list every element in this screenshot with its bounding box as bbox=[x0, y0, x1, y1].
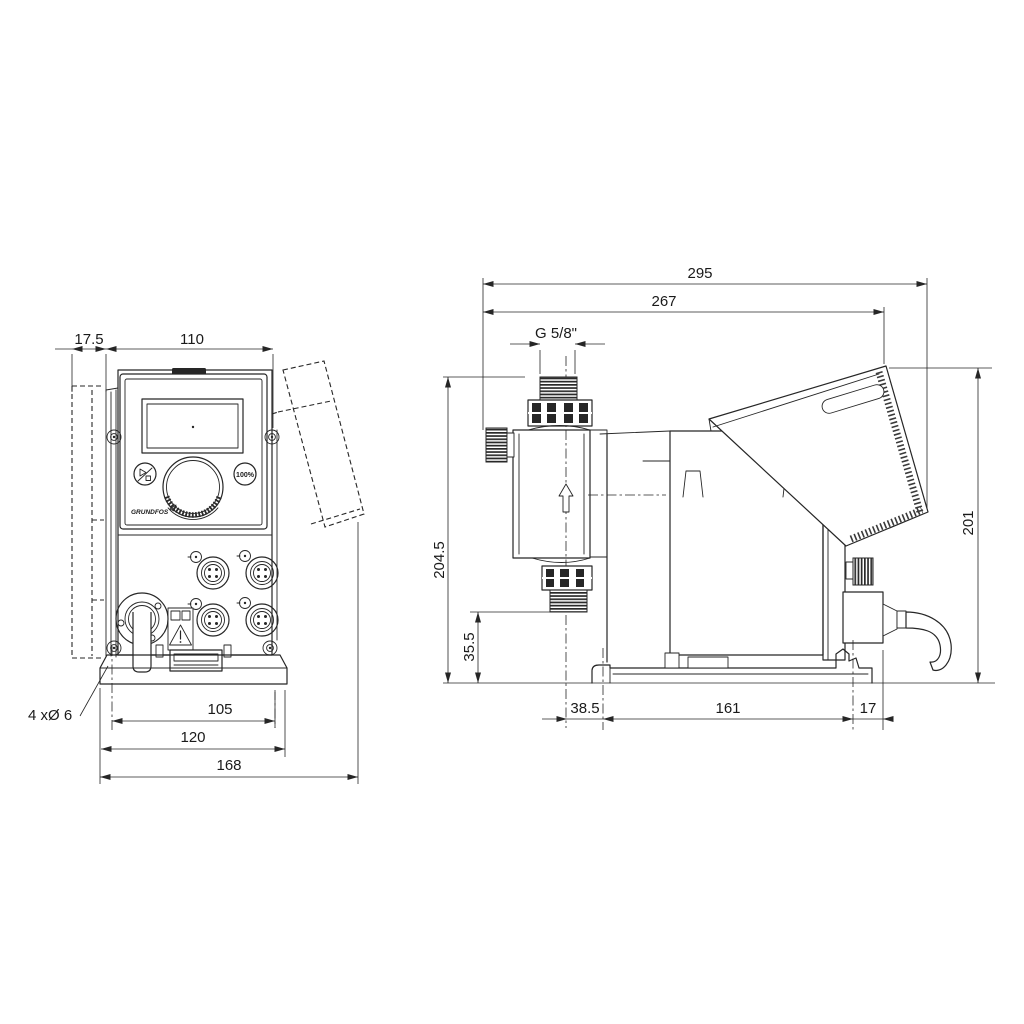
dim-110: 110 bbox=[180, 331, 204, 348]
cable-gland bbox=[843, 592, 951, 670]
dosing-head-hidden-outline bbox=[272, 361, 364, 640]
connector-top-right[interactable] bbox=[246, 557, 278, 589]
connector-top-left[interactable] bbox=[197, 557, 229, 589]
discharge-union-nut bbox=[528, 400, 592, 426]
connector-function-icons bbox=[188, 551, 251, 610]
head-bracket bbox=[588, 430, 670, 683]
dim-295: 295 bbox=[687, 265, 712, 282]
dim-201: 201 bbox=[960, 510, 977, 535]
hundred-percent-label: 100% bbox=[236, 472, 255, 479]
dim-17: 17 bbox=[860, 700, 877, 717]
suction-thread bbox=[550, 590, 587, 612]
base-clamp bbox=[156, 645, 231, 671]
control-panel: 100% GRUNDFOS bbox=[120, 374, 267, 529]
dosing-head bbox=[486, 356, 592, 728]
dim-267: 267 bbox=[651, 293, 676, 310]
base-plate-side bbox=[592, 649, 872, 683]
pump-head-cylinder bbox=[513, 430, 590, 558]
power-cable-front bbox=[133, 612, 151, 672]
display-cursor-dot bbox=[192, 426, 194, 428]
discharge-thread bbox=[540, 377, 577, 400]
flow-direction-arrow bbox=[559, 484, 573, 512]
dimensional-drawing-page: 100% GRUNDFOS bbox=[0, 0, 1024, 1024]
dim-35-5: 35.5 bbox=[461, 632, 478, 661]
dosing-pump-dimensional-drawing: 100% GRUNDFOS bbox=[0, 0, 1024, 1024]
leader-line-holes bbox=[80, 666, 108, 716]
dim-161: 161 bbox=[715, 700, 740, 717]
head-bottom-shoulder bbox=[532, 558, 590, 563]
front-view: 100% GRUNDFOS bbox=[28, 331, 364, 784]
power-cable-side bbox=[906, 612, 951, 670]
rear-connector-stub bbox=[846, 558, 873, 585]
clamp-tab-1 bbox=[683, 471, 703, 497]
signal-connectors bbox=[188, 551, 278, 637]
grundfos-logo: GRUNDFOS bbox=[131, 509, 169, 516]
dim-120: 120 bbox=[180, 729, 205, 746]
control-cover bbox=[709, 366, 928, 546]
dim-17-5: 17.5 bbox=[74, 331, 103, 348]
front-foot bbox=[592, 665, 610, 683]
dim-105: 105 bbox=[207, 701, 232, 718]
dim-mounting-holes: 4 xØ 6 bbox=[28, 707, 72, 724]
connector-bottom-right[interactable] bbox=[246, 604, 278, 636]
connector-bottom-left[interactable] bbox=[197, 604, 229, 636]
deaeration-valve bbox=[486, 428, 514, 462]
side-view: 295 267 G 5/8" 204.5 35.5 bbox=[431, 265, 995, 730]
dim-thread: G 5/8" bbox=[535, 325, 577, 342]
wall-plate-hidden bbox=[72, 386, 104, 658]
mains-cable-flange bbox=[116, 593, 168, 672]
warning-label bbox=[168, 608, 193, 650]
dim-38-5: 38.5 bbox=[570, 700, 599, 717]
suction-union-nut bbox=[542, 566, 592, 590]
dim-204-5: 204.5 bbox=[431, 541, 448, 579]
dim-168: 168 bbox=[216, 757, 241, 774]
